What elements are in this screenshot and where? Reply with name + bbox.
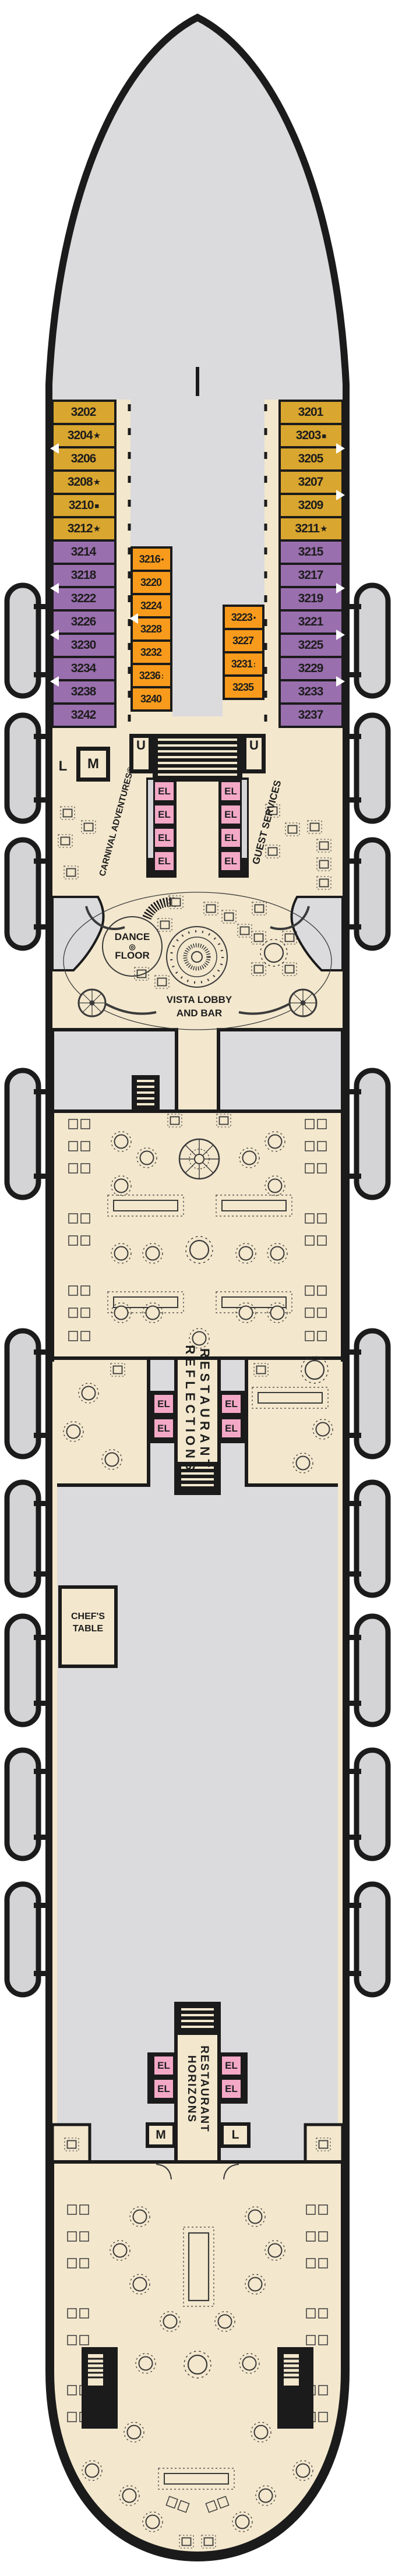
label-vista-lobby-and-bar: VISTA LOBBY AND BAR — [141, 994, 258, 1020]
reflections-word2: RESTAURANT — [198, 1348, 212, 1471]
cabin[interactable]: 3204★ — [54, 425, 114, 446]
cabin[interactable]: 3218 — [54, 565, 114, 586]
elevator: EL — [154, 1419, 173, 1437]
chefs-table-line2: TABLE — [73, 1623, 103, 1635]
elevator: EL — [222, 2056, 241, 2075]
cabin-number: 3220 — [140, 577, 161, 589]
l-room-label: L — [51, 758, 75, 775]
m-room: M — [76, 747, 110, 782]
cabin[interactable]: 3230 — [54, 635, 114, 656]
elevator: EL — [222, 1419, 241, 1437]
cabin-number: 3231 — [231, 658, 252, 670]
cabin[interactable]: 3238 — [54, 681, 114, 702]
label-horizons-restaurant: HORIZONS RESTAURANT — [184, 2002, 211, 2176]
elevator: EL — [155, 782, 174, 800]
elevator: EL — [155, 805, 174, 824]
cabin-symbol: : — [253, 660, 256, 669]
elevator: EL — [154, 2056, 173, 2075]
stairs-u-box-right: U — [242, 734, 266, 773]
reflections-word1: REFLECTIONS — [183, 1345, 198, 1473]
cabin-column-port-outer: 3202 3204★ 3206 3208★ 3210■ 3212★ 3214 3… — [51, 400, 117, 728]
cabin[interactable]: 3212★ — [54, 518, 114, 539]
cabin[interactable]: 3228 — [133, 619, 170, 639]
dance-floor-line1: DANCE — [115, 932, 150, 943]
vista-line1: VISTA LOBBY — [141, 994, 258, 1007]
cabin-number: 3240 — [140, 693, 161, 705]
cabin[interactable]: 3222 — [54, 588, 114, 609]
cabin-number: 3229 — [298, 662, 323, 676]
cabin-number: 3208 — [68, 475, 93, 489]
label-dance-floor: DANCE ◎ FLOOR — [102, 916, 163, 977]
cabin[interactable]: 3233 — [281, 681, 341, 702]
cabin-number: 3228 — [140, 623, 161, 635]
horizons-word2: RESTAURANT — [198, 2045, 210, 2132]
cabin-number: 3205 — [298, 452, 323, 466]
cabin-number: 3225 — [298, 638, 323, 652]
cabin-number: 3224 — [140, 600, 161, 612]
cabin-column-starboard-outer: 3201 3203■ 3205 3207 3209 3211★ 3215 321… — [278, 400, 344, 728]
elevator-bank-mid-starboard: EL EL — [220, 1391, 248, 1443]
cabin-symbol: ■ — [322, 432, 326, 440]
cabin-symbol: ★ — [320, 524, 327, 533]
cabin[interactable]: 3225 — [281, 635, 341, 656]
cabin-number: 3232 — [140, 646, 161, 659]
cabin-number: 3206 — [71, 452, 96, 466]
main-stairs-forward — [153, 734, 242, 782]
elevator: EL — [222, 2080, 241, 2098]
cabin[interactable]: 3216• — [133, 549, 170, 570]
cabin[interactable]: 3226 — [54, 612, 114, 632]
cabin[interactable]: 3201 — [281, 402, 341, 423]
cabin-number: 3237 — [298, 708, 323, 722]
cabin[interactable]: 3224 — [133, 595, 170, 616]
cabin[interactable]: 3242 — [54, 705, 114, 726]
cabin[interactable]: 3210■ — [54, 495, 114, 516]
elevator: EL — [155, 829, 174, 847]
elevator: EL — [221, 852, 240, 870]
cabin[interactable]: 3205 — [281, 448, 341, 469]
elevator: EL — [154, 2080, 173, 2098]
cabin-number: 3212 — [68, 522, 93, 536]
cabin[interactable]: 3227 — [225, 630, 262, 651]
cabin-symbol: : — [161, 672, 164, 680]
cabin[interactable]: 3229 — [281, 658, 341, 679]
cabin[interactable]: 3214 — [54, 542, 114, 563]
cabin-symbol: ★ — [94, 478, 101, 487]
cabin[interactable]: 3236: — [133, 665, 170, 686]
cabin[interactable]: 3209 — [281, 495, 341, 516]
elevator: EL — [221, 782, 240, 800]
vista-line2: AND BAR — [141, 1007, 258, 1020]
cabin-number: 3215 — [298, 545, 323, 559]
cabin-number: 3230 — [71, 638, 96, 652]
cabin-column-starboard-inner: 3223• 3227 3231: 3235 — [223, 605, 264, 700]
elevator: EL — [155, 852, 174, 870]
cabin-number: 3235 — [232, 681, 253, 694]
elevator-lobby — [148, 780, 153, 858]
cabin-number: 3204 — [68, 429, 93, 443]
cabin-number: 3216 — [139, 553, 160, 566]
elevator: EL — [221, 805, 240, 824]
cabin-number: 3233 — [298, 685, 323, 699]
lobby-stairs — [132, 1075, 160, 1110]
elevator: EL — [222, 1395, 241, 1413]
elevator-bank-aft-starboard: EL EL — [220, 2052, 248, 2104]
dance-floor-line2: FLOOR — [115, 950, 150, 962]
cabin-number: 3202 — [71, 405, 96, 419]
elevator-bank-aft-port: EL EL — [147, 2052, 175, 2104]
cabin-number: 3211 — [295, 522, 319, 536]
cabin-number: 3214 — [71, 545, 96, 559]
elevator-lobby — [242, 780, 247, 858]
cabin-number: 3203 — [296, 429, 321, 443]
m-room-aft: M — [146, 2122, 176, 2148]
cabin-number: 3238 — [71, 685, 96, 699]
cabin-symbol: ★ — [94, 431, 101, 440]
cabin[interactable]: 3235 — [225, 677, 262, 698]
cabin[interactable]: 3221 — [281, 612, 341, 632]
elevator: EL — [221, 829, 240, 847]
cabin-number: 3201 — [298, 405, 323, 419]
l-room-aft: L — [220, 2122, 251, 2148]
cabin[interactable]: 3223• — [225, 607, 262, 628]
cabin-symbol: ★ — [94, 524, 101, 533]
cabin[interactable]: 3208★ — [54, 472, 114, 493]
cabin[interactable]: 3207 — [281, 472, 341, 493]
chefs-table-room: CHEF'S TABLE — [58, 1585, 118, 1668]
label-reflections-restaurant: REFLECTIONS RESTAURANT — [182, 1322, 213, 1497]
cabin-column-port-inner: 3216• 3220 3224 3228 3232 3236: 3240 — [131, 546, 172, 712]
cabin-number: 3223 — [231, 612, 252, 624]
cabin[interactable]: 3206 — [54, 448, 114, 469]
bullseye-icon: ◎ — [129, 943, 135, 950]
cabin-number: 3226 — [71, 615, 96, 629]
cabin[interactable]: 3234 — [54, 658, 114, 679]
cabin-number: 3227 — [232, 635, 253, 647]
cabin[interactable]: 3232 — [133, 642, 170, 663]
cabin-number: 3234 — [71, 662, 96, 676]
cabin-number: 3222 — [71, 592, 96, 606]
cabin-symbol: • — [161, 555, 164, 564]
cabin[interactable]: 3202 — [54, 402, 114, 423]
deck-plan-base-drawing — [0, 0, 395, 2576]
cabin[interactable]: 3220 — [133, 572, 170, 593]
cabin-symbol: ■ — [94, 501, 99, 510]
cabin[interactable]: 3231: — [225, 653, 262, 674]
cabin[interactable]: 3203■ — [281, 425, 341, 446]
cabin-number: 3217 — [298, 568, 323, 582]
cabin-number: 3218 — [71, 568, 96, 582]
cabin-number: 3207 — [298, 475, 323, 489]
elevator: EL — [154, 1395, 173, 1413]
cabin[interactable]: 3240 — [133, 688, 170, 709]
cabin[interactable]: 3215 — [281, 542, 341, 563]
elevator-bank-mid-port: EL EL — [147, 1391, 175, 1443]
cabin-number: 3221 — [298, 615, 323, 629]
cabin[interactable]: 3211★ — [281, 518, 341, 539]
cabin-number: 3209 — [298, 499, 323, 513]
cabin-number: 3210 — [69, 499, 94, 513]
cabin-number: 3219 — [298, 592, 323, 606]
cabin[interactable]: 3217 — [281, 565, 341, 586]
cabin-symbol: • — [253, 613, 256, 622]
cabin[interactable]: 3237 — [281, 705, 341, 726]
cabin[interactable]: 3219 — [281, 588, 341, 609]
deck-plan: 3202 3204★ 3206 3208★ 3210■ 3212★ 3214 3… — [0, 0, 395, 2576]
elevator-bank-forward-port: EL EL EL EL — [146, 778, 177, 878]
horizons-word1: HORIZONS — [185, 2055, 198, 2123]
chefs-table-line1: CHEF'S — [71, 1611, 105, 1623]
elevator-bank-forward-starboard: EL EL EL EL — [218, 778, 249, 878]
cabin-number: 3236 — [139, 670, 160, 682]
cabin-number: 3242 — [71, 708, 96, 722]
